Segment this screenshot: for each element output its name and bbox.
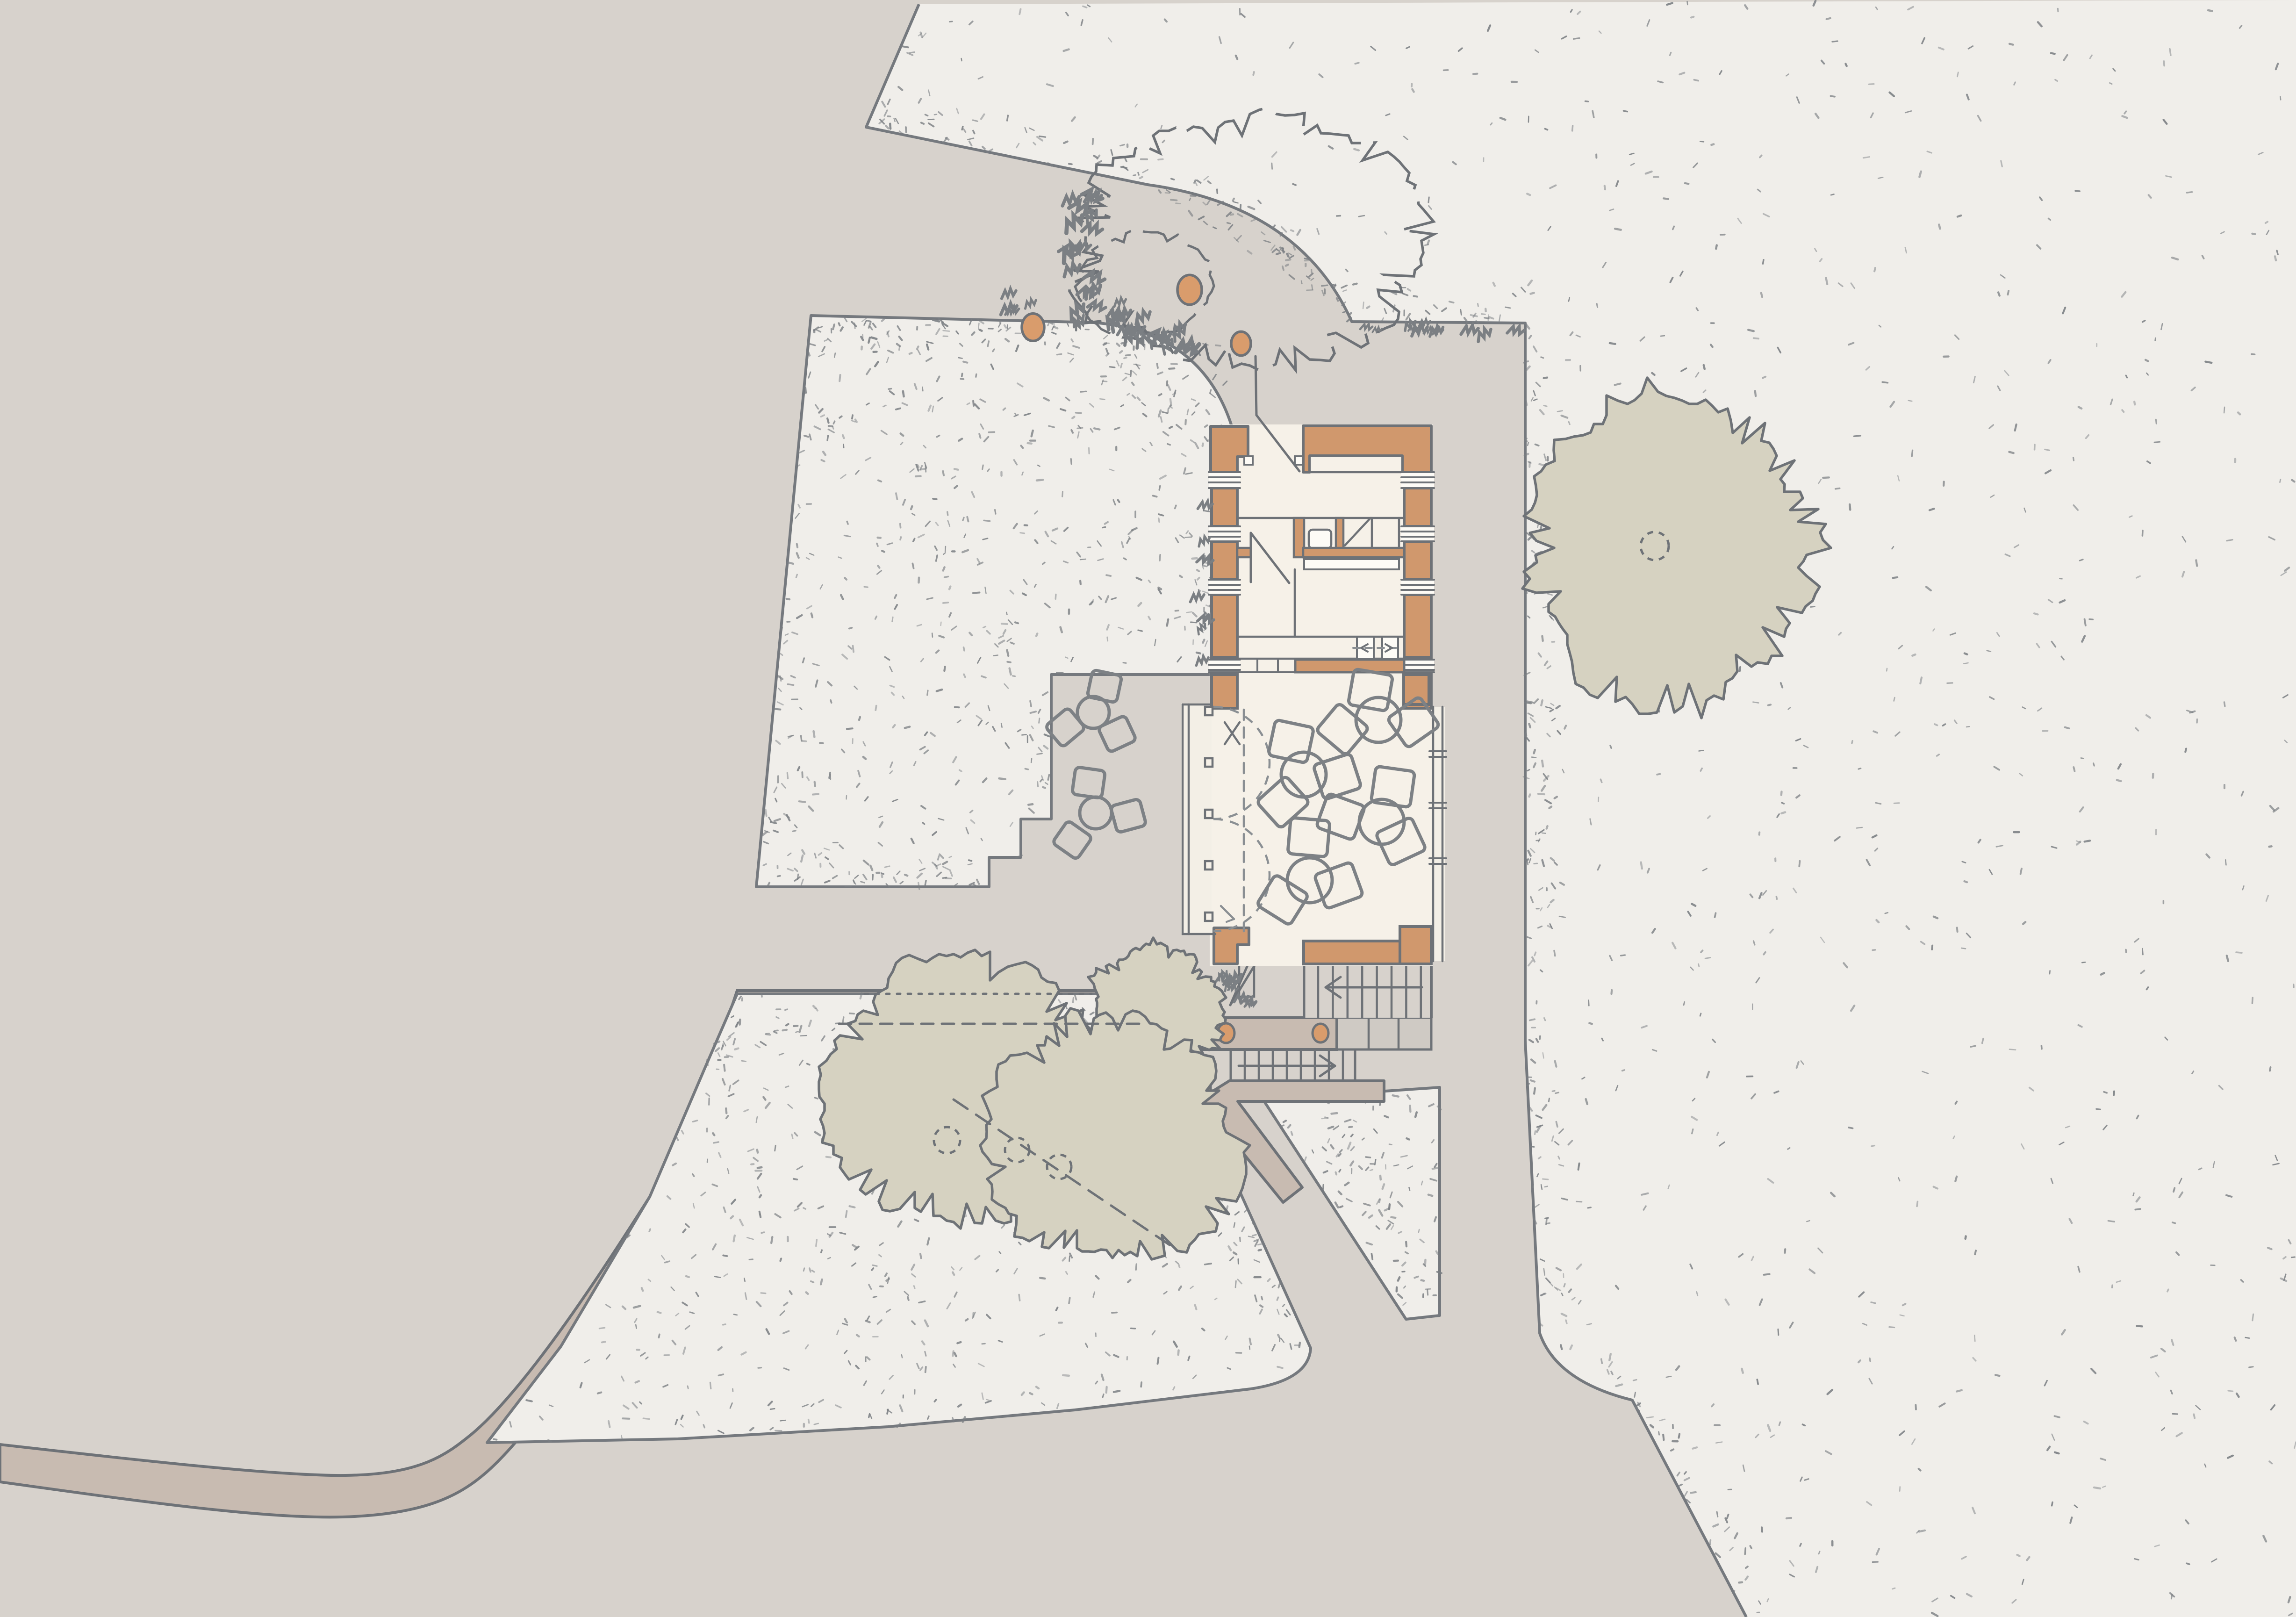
wall-east <box>1404 541 1431 580</box>
tree-trunk-dot <box>1022 314 1044 341</box>
veranda-post <box>1205 707 1213 715</box>
veranda-post <box>1205 758 1213 767</box>
entry-door-post <box>1295 456 1303 465</box>
entry-door-post <box>1244 456 1253 465</box>
wide-steps <box>1337 1018 1431 1049</box>
wall-south <box>1304 941 1400 964</box>
building-interior-floor <box>1210 424 1433 966</box>
built-in-niche <box>1310 456 1402 472</box>
wc-fixture <box>1309 530 1331 548</box>
partition-wall <box>1303 548 1404 557</box>
veranda-post <box>1205 913 1213 921</box>
wall-east <box>1404 595 1431 657</box>
veranda-post <box>1205 810 1213 818</box>
site-plan-drawing <box>0 0 2296 1617</box>
wall-west <box>1212 595 1237 657</box>
tree-trunk-dot <box>1231 331 1251 355</box>
wall-west <box>1212 488 1237 526</box>
bench-ledge <box>1304 559 1399 569</box>
veranda-post <box>1205 861 1213 870</box>
building-floor-plan <box>1181 356 1446 966</box>
landing-column <box>1313 1024 1328 1042</box>
wall-east <box>1404 488 1431 526</box>
wall-west <box>1212 541 1237 580</box>
pier-se <box>1400 927 1431 964</box>
wall-west <box>1212 675 1237 708</box>
tree-trunk-dot <box>1177 275 1202 304</box>
